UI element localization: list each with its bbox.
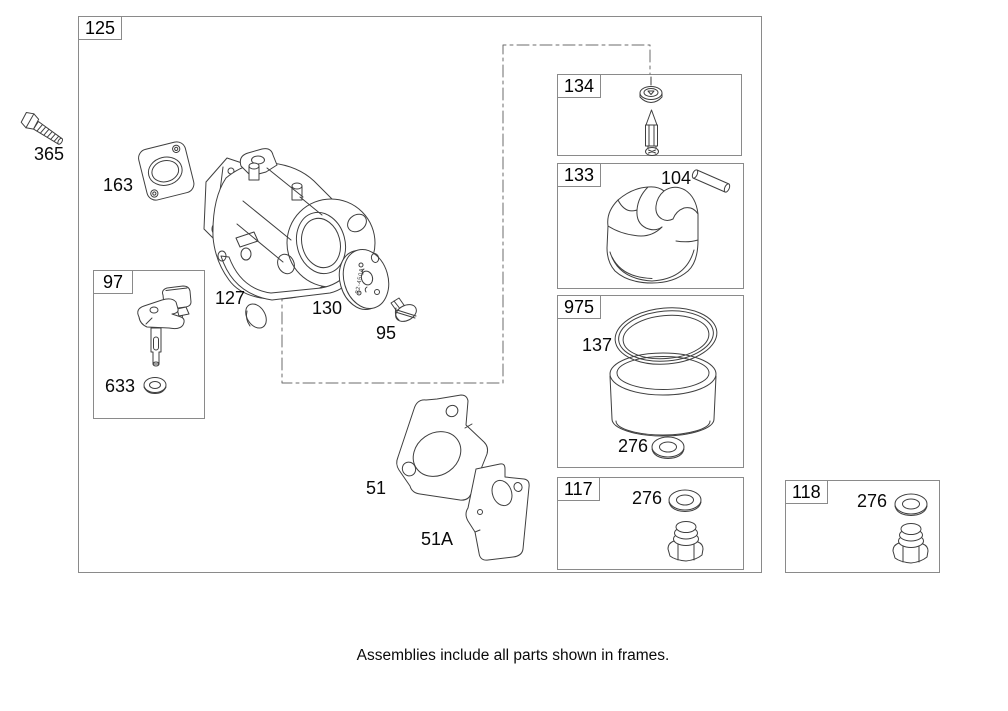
frame-125-label: 125 xyxy=(78,16,122,40)
frame-975-label: 975 xyxy=(557,295,601,319)
part-label-276-bowl: 276 xyxy=(618,437,648,455)
part-label-276-f117: 276 xyxy=(632,489,662,507)
part-label-104: 104 xyxy=(661,169,691,187)
diagram-caption: Assemblies include all parts shown in fr… xyxy=(310,647,716,665)
frame-133-float: 133 xyxy=(557,163,744,289)
frame-117-label: 117 xyxy=(557,477,600,501)
frame-97-throttle-shaft: 97 xyxy=(93,270,205,419)
part-label-130: 130 xyxy=(312,299,342,317)
frame-118-label: 118 xyxy=(785,480,828,504)
part-label-276-f118: 276 xyxy=(857,492,887,510)
part-label-137: 137 xyxy=(582,336,612,354)
frame-134-needle-valve: 134 xyxy=(557,74,742,156)
part-label-95: 95 xyxy=(376,324,396,342)
part-label-633: 633 xyxy=(105,377,135,395)
carburetor-parts-diagram: 125 97 134 133 975 117 118 xyxy=(0,0,1008,711)
frame-133-label: 133 xyxy=(557,163,601,187)
part-label-51a: 51A xyxy=(421,530,453,548)
part-label-365: 365 xyxy=(34,145,64,163)
part-label-163: 163 xyxy=(103,176,133,194)
frame-975-float-bowl: 975 xyxy=(557,295,744,468)
part-label-51: 51 xyxy=(366,479,386,497)
frame-97-label: 97 xyxy=(93,270,133,294)
frame-134-label: 134 xyxy=(557,74,601,98)
bolt-365-drawing xyxy=(19,110,66,148)
part-label-127: 127 xyxy=(215,289,245,307)
